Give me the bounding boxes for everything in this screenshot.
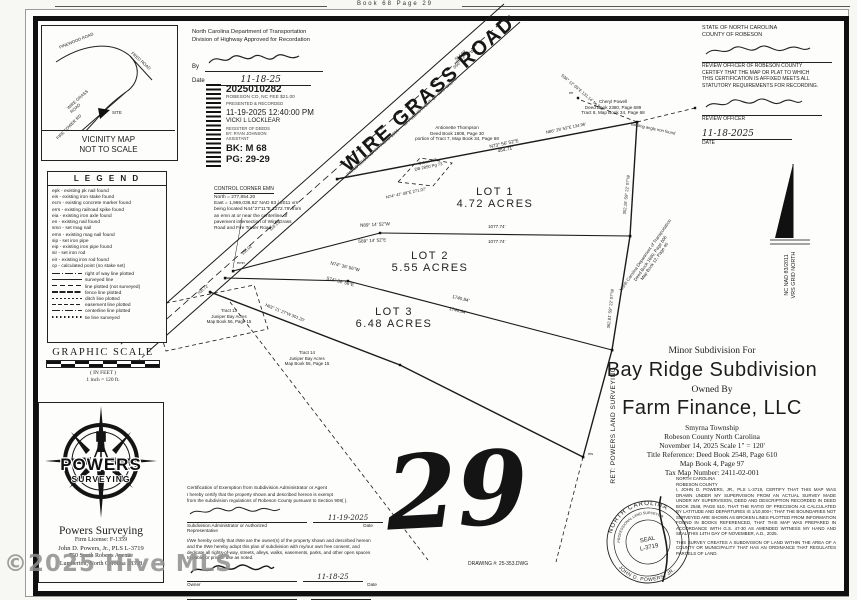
ncdot-line2: Division of Highway Approved for Recorda… [192,37,354,45]
township-line: Smyrna Township [592,423,832,432]
graphic-scale-units: ( IN FEET ) [42,370,164,377]
review-officer-signature-1 [702,44,814,57]
legend-line-item: tie line surveyed [52,316,162,322]
legend-box: L E G E N D epk - existing pk nail found… [47,171,167,343]
review-date-label: DATE [702,140,843,147]
owner-name: Farm Finance, LLC [592,397,832,420]
graphic-scale-block: GRAPHIC SCALE ( IN FEET ) 1 inch = 120 f… [42,347,164,384]
adjoiner-thompson: Antionette Thompson Deed Book 1808, Page… [398,125,516,142]
stamp-deputy-title: ASSISTANT [226,136,314,141]
powers-firm-license: Firm License: F-1359 [39,537,163,545]
not-surveyed-line-sample [52,285,82,286]
admin-date-value: 11-19-2025 [313,514,383,523]
review-officer-block: STATE OF NORTH CAROLINA COUNTY OF ROBESO… [702,25,843,146]
powers-firm-name: Powers Surveying [39,525,163,537]
surveyor-certification-block: NORTH CAROLINA ROBESON COUNTY I, JOHN D.… [676,476,836,556]
vicinity-map-box: PINEWOOD ROAD FRED ROAD WIRE GRASS ROAD … [41,25,178,161]
lot3-label: LOT 3 6.48 ACRES [344,306,444,330]
review-state-line: STATE OF NORTH CAROLINA [702,25,843,32]
monument-label-emn: emn [237,261,245,266]
admin-date-label: Date [363,523,373,529]
adjoiner-tract14: Tract 14 Juniper Bay Acres Map Book 56, … [270,350,344,367]
stamp-page: PG: 29-29 [226,154,314,165]
title-kicker: Minor Subdivision For [592,346,832,358]
stamp-register-name: VICKI L LOCKLEAR [226,118,314,126]
review-officer-signature-2 [702,97,806,110]
control-corner-note: CONTROL CORNER EMN North = 277,854.20 Ea… [214,177,326,232]
ncdot-approval-block: North Carolina Department of Transportat… [192,29,354,86]
vicinity-roads [42,26,177,130]
stamp-recorded-line: PRESENTED & RECORDED [226,101,314,107]
ncdot-by-label: By [192,64,199,72]
graphic-scale-title: GRAPHIC SCALE [42,347,164,358]
adjoiner-powell: Cheryl Powell Deed Book 2380, Page 689 T… [556,99,670,116]
ditch-line-sample [52,298,82,299]
hive-mls-watermark: ©2025 Hive MLS [4,551,233,577]
surveyor-cert-paragraph1: I, JOHN D. POWERS, JR., PLS L-3719, CERT… [676,487,836,537]
admin-label-line2: Representative [187,528,401,534]
vicinity-caption: VICINITY MAP NOT TO SCALE [42,130,175,156]
powers-compass-logo: POWERS SURVEYING [45,406,157,520]
admin-signature [187,506,283,517]
site-marker [98,108,110,119]
sheet-number-handwritten: 29 [383,436,530,545]
map-book-line: Map Book 4, Page 97 [592,459,832,468]
owner-label-1: Owner [187,582,201,588]
vicinity-caption-line1: VICINITY MAP [42,135,175,145]
owner-date-value: 11-18-25 [303,573,363,582]
plat-sheet: Book 68 Page 29 [0,0,857,600]
stamp-datetime: 11-19-2025 12:40:00 PM [226,108,314,118]
control-corner-title: CONTROL CORNER EMN [214,186,274,194]
centerline-line-sample [52,310,82,311]
review-body-line4: STATUTORY REQUIREMENTS FOR RECORDING. [702,83,843,90]
powers-logo-word: POWERS [60,455,142,474]
recording-stamp: 2025010282 ROBESON CO, NC FEE $21.00 PRE… [206,84,348,168]
tie-line-sample [52,316,82,317]
review-county-line: COUNTY OF ROBESON [702,32,843,39]
legend-item: cp - calculated point (no stake set) [52,264,162,270]
stamp-barcode [206,84,221,168]
title-reference-line: Title Reference: Deed Book 2548, Page 61… [592,450,832,459]
lot1-label: LOT 1 4.72 ACRES [445,186,545,210]
county-line: Robeson County North Carolina [592,432,832,441]
ncdot-signature [205,52,305,66]
north-arrow-label: NC NAD 83/2011 VRS GRID NORTH [784,220,798,330]
surveying-logo-word: SURVEYING [72,474,131,484]
lot-boundary-lines [210,122,637,457]
stamp-book: BK: M 68 [226,143,314,154]
easement-line-sample [52,304,82,305]
stamp-doc-number: 2025010282 [226,84,314,95]
review-date-value: 11-18-2025 [702,129,792,140]
date-scale-line: November 14, 2025 Scale 1" = 120' [592,441,832,450]
graphic-scale-ratio: 1 inch = 120 ft. [42,377,164,384]
exemption-block: Certification of Exemption from Subdivis… [187,486,401,600]
surveyor-seal: NORTH CAROLINA PROFESSIONAL LAND SURVEYO… [596,490,700,594]
review-officer-label: REVIEW OFFICER [702,116,843,123]
ncdot-line1: North Carolina Department of Transportat… [192,29,354,37]
seal-center-number: L-3719 [639,543,659,553]
drawing-number: DRAWING #: 25-353.DWG [468,561,528,568]
vicinity-caption-line2: NOT TO SCALE [42,145,175,155]
subdivision-title: Bay Ridge Subdivision [592,359,832,382]
rightofway-line-sample [52,273,82,274]
legend-title: L E G E N D [48,172,166,186]
lot2-label: LOT 2 5.55 ACRES [380,250,480,274]
divider1-distance-a: 1077.74' [488,224,505,230]
title-block: Minor Subdivision For Bay Ridge Subdivis… [592,346,832,477]
surveyed-line-sample [52,279,82,280]
owned-by-label: Owned By [592,385,832,397]
divider1-distance-b: 1077.74' [488,239,505,245]
vicinity-site-label: SITE [112,110,122,116]
owner-date-label-1: Date [367,582,377,588]
fence-line-sample [52,291,82,293]
ncdot-date-label: Date [192,78,205,86]
adjoiner-tract13: Tract 13 Juniper Bay Acres Map Book 56, … [194,308,264,325]
graphic-scale-bar [46,360,160,368]
monument-label-eir: eir [569,91,573,96]
surveyor-cert-paragraph2: THIS SURVEY CREATES A SUBDIVISION OF LAN… [676,540,836,557]
